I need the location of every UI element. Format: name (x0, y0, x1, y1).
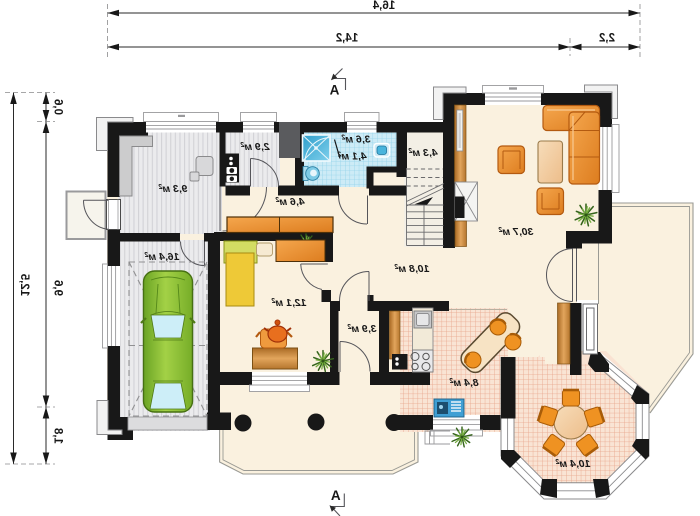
svg-text:30,7 м2: 30,7 м2 (498, 226, 533, 238)
svg-text:A: A (329, 83, 339, 98)
svg-text:9,6: 9,6 (52, 280, 64, 296)
svg-text:3,6 м2: 3,6 м2 (341, 134, 370, 146)
svg-text:16,4 м2: 16,4 м2 (144, 251, 179, 263)
svg-text:14,2: 14,2 (336, 33, 358, 45)
svg-text:4,6 м2: 4,6 м2 (275, 196, 305, 208)
svg-text:3,9 м2: 3,9 м2 (347, 323, 376, 335)
svg-text:16,4: 16,4 (372, 0, 395, 12)
svg-text:4,3 м2: 4,3 м2 (408, 147, 438, 159)
svg-text:12,5: 12,5 (18, 273, 30, 296)
svg-text:A: A (331, 488, 341, 503)
svg-text:0,6: 0,6 (52, 99, 64, 115)
svg-text:10,8 м2: 10,8 м2 (394, 263, 429, 275)
svg-text:9,3 м2: 9,3 м2 (158, 183, 187, 195)
svg-text:2,2: 2,2 (599, 33, 615, 45)
svg-text:10,4 м2: 10,4 м2 (555, 458, 590, 470)
svg-text:8,4 м2: 8,4 м2 (449, 377, 478, 389)
svg-text:2,9 м2: 2,9 м2 (240, 141, 270, 153)
svg-text:4,1 м2: 4,1 м2 (337, 151, 367, 163)
svg-text:12,1 м2: 12,1 м2 (271, 297, 306, 309)
svg-text:1,8: 1,8 (52, 427, 64, 444)
